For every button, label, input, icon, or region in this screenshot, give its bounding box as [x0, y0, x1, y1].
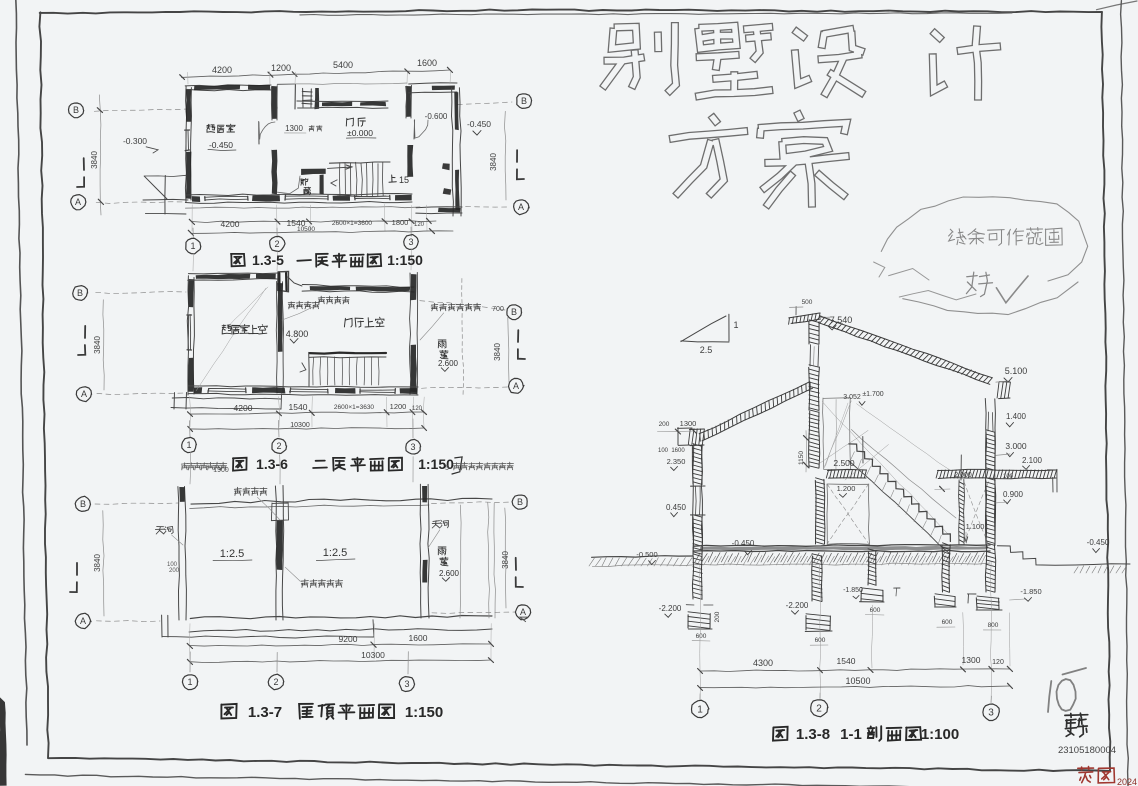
- svg-text:600: 600: [942, 619, 953, 626]
- svg-text:3840: 3840: [493, 343, 502, 361]
- svg-text:1200: 1200: [271, 63, 291, 73]
- svg-text:10500: 10500: [297, 226, 315, 233]
- svg-text:1540: 1540: [289, 402, 308, 412]
- svg-text:3840: 3840: [93, 336, 102, 354]
- svg-text:3: 3: [408, 237, 413, 247]
- svg-text:0.450: 0.450: [666, 503, 687, 512]
- svg-text:10500: 10500: [845, 676, 870, 686]
- svg-text:2: 2: [273, 677, 278, 687]
- svg-text:3840: 3840: [90, 151, 99, 169]
- svg-text:2.600: 2.600: [438, 359, 459, 368]
- svg-text:3.000: 3.000: [1005, 441, 1027, 451]
- svg-text:600: 600: [696, 633, 707, 640]
- svg-text:4200: 4200: [234, 403, 253, 413]
- svg-text:B: B: [521, 96, 527, 106]
- svg-text:3: 3: [404, 679, 409, 689]
- svg-text:1:150: 1:150: [405, 704, 443, 721]
- svg-text:A: A: [80, 616, 86, 626]
- svg-text:-0.450: -0.450: [467, 119, 491, 129]
- svg-text:1:2.5: 1:2.5: [323, 547, 347, 559]
- svg-text:A: A: [518, 202, 524, 212]
- svg-text:1: 1: [186, 440, 191, 450]
- svg-text:1:2.5: 1:2.5: [220, 548, 244, 560]
- svg-text:1800: 1800: [392, 218, 409, 227]
- svg-text:-1.850: -1.850: [1020, 587, 1041, 596]
- svg-text:-2.200: -2.200: [659, 604, 682, 613]
- svg-text:2.100: 2.100: [1022, 456, 1043, 465]
- svg-text:A: A: [81, 389, 87, 399]
- svg-text:3840: 3840: [489, 153, 498, 171]
- svg-text:2: 2: [274, 239, 279, 249]
- svg-text:1300: 1300: [962, 655, 981, 665]
- svg-text:1: 1: [697, 705, 703, 716]
- svg-text:1: 1: [190, 241, 195, 251]
- svg-text:10300: 10300: [290, 422, 310, 429]
- svg-text:2.350: 2.350: [667, 457, 686, 466]
- svg-text:-0.450: -0.450: [732, 539, 755, 548]
- svg-text:B: B: [511, 307, 517, 317]
- svg-text:1.3-8: 1.3-8: [796, 726, 830, 743]
- svg-text:3: 3: [410, 442, 415, 452]
- svg-text:1.3-6: 1.3-6: [256, 456, 288, 472]
- svg-text:-0.450: -0.450: [209, 140, 233, 150]
- svg-text:5.100: 5.100: [1005, 366, 1028, 376]
- svg-text:1.100: 1.100: [966, 522, 985, 531]
- svg-text:A: A: [75, 197, 81, 207]
- svg-text:1:150: 1:150: [387, 252, 423, 268]
- svg-text:4200: 4200: [221, 219, 240, 229]
- svg-text:200: 200: [169, 568, 180, 574]
- svg-text:9200: 9200: [339, 634, 358, 644]
- svg-text:B: B: [517, 497, 523, 507]
- svg-text:800: 800: [988, 622, 999, 629]
- svg-text:0.900: 0.900: [1003, 490, 1024, 499]
- svg-text:1: 1: [733, 320, 738, 330]
- svg-text:-0.500: -0.500: [636, 550, 657, 559]
- svg-text:2.5: 2.5: [700, 345, 713, 355]
- svg-text:2600×1=3630: 2600×1=3630: [334, 404, 375, 411]
- svg-text:1:100: 1:100: [921, 726, 959, 743]
- svg-text:200: 200: [659, 421, 670, 428]
- svg-text:600: 600: [870, 607, 881, 614]
- svg-text:2.500: 2.500: [833, 458, 855, 468]
- svg-text:200: 200: [714, 611, 721, 622]
- svg-text:3840: 3840: [93, 554, 102, 572]
- svg-text:1.400: 1.400: [1006, 412, 1027, 421]
- svg-text:2.000: 2.000: [954, 472, 972, 479]
- svg-text:120: 120: [414, 222, 425, 228]
- svg-text:5: 5: [445, 465, 449, 472]
- svg-text:1300: 1300: [680, 419, 697, 428]
- svg-text:2024: 2024: [1117, 777, 1137, 786]
- svg-text:-0.600: -0.600: [425, 112, 448, 121]
- svg-text:100: 100: [1003, 474, 1014, 480]
- svg-text:1900: 1900: [213, 467, 229, 474]
- svg-text:1600: 1600: [671, 448, 685, 454]
- svg-text:-0.300: -0.300: [123, 136, 147, 146]
- svg-text:1.3-7: 1.3-7: [248, 704, 282, 721]
- svg-text:2: 2: [276, 441, 281, 451]
- svg-text:23105180004: 23105180004: [1058, 745, 1116, 756]
- svg-text:2: 2: [816, 704, 822, 715]
- svg-text:-1.850: -1.850: [843, 587, 863, 594]
- svg-text:1: 1: [187, 677, 192, 687]
- svg-text:120: 120: [992, 659, 1004, 666]
- svg-text:3840: 3840: [501, 551, 510, 569]
- svg-text:15: 15: [399, 175, 409, 185]
- svg-text:1540: 1540: [837, 656, 856, 666]
- svg-text:3.052: 3.052: [843, 394, 861, 401]
- svg-text:B: B: [73, 105, 79, 115]
- svg-text:1600: 1600: [417, 58, 437, 68]
- svg-text:5400: 5400: [333, 60, 353, 70]
- svg-text:1.200: 1.200: [837, 484, 856, 493]
- svg-text:B: B: [77, 288, 83, 298]
- svg-text:120: 120: [412, 406, 423, 412]
- svg-text:2.600: 2.600: [439, 569, 460, 578]
- svg-text:1300: 1300: [285, 124, 303, 133]
- svg-text:-2.200: -2.200: [786, 601, 809, 610]
- svg-text:1.3-5: 1.3-5: [252, 252, 284, 268]
- svg-text:1600: 1600: [409, 633, 428, 643]
- svg-text:10300: 10300: [361, 650, 385, 660]
- svg-text:100: 100: [658, 448, 669, 454]
- svg-text:3: 3: [988, 708, 994, 719]
- svg-text:±0.000: ±0.000: [347, 128, 373, 138]
- svg-text:B: B: [80, 499, 86, 509]
- svg-text:2600×1=3600: 2600×1=3600: [332, 220, 373, 227]
- svg-text:500: 500: [802, 299, 813, 306]
- svg-text:4200: 4200: [212, 65, 232, 75]
- svg-text:±1.700: ±1.700: [862, 391, 883, 398]
- svg-text:1200: 1200: [390, 402, 407, 411]
- svg-text:-0.450: -0.450: [1087, 538, 1110, 547]
- svg-text:700: 700: [492, 306, 504, 313]
- svg-text:4300: 4300: [753, 658, 773, 668]
- svg-text:1-1: 1-1: [840, 726, 862, 743]
- svg-text:4.800: 4.800: [286, 329, 309, 339]
- svg-text:A: A: [520, 607, 526, 617]
- svg-text:A: A: [513, 381, 519, 391]
